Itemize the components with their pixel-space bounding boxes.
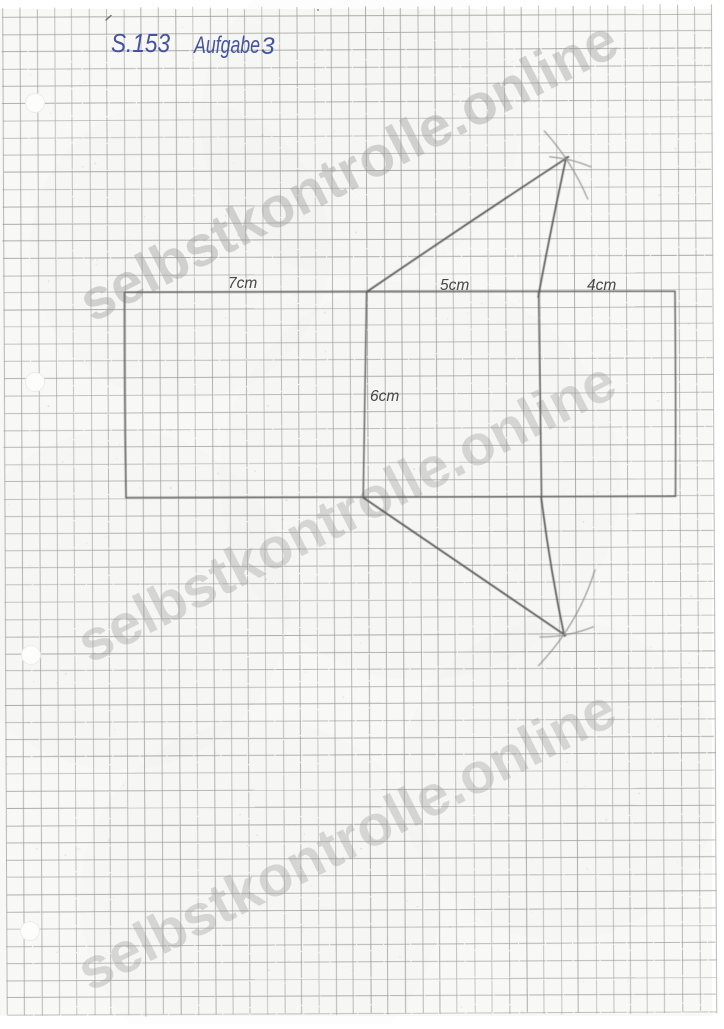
svg-text:5cm: 5cm xyxy=(440,277,469,294)
svg-text:6cm: 6cm xyxy=(370,388,399,405)
svg-text:7cm: 7cm xyxy=(228,275,257,292)
svg-text:Aufgabe: Aufgabe xyxy=(193,32,260,59)
svg-text:3: 3 xyxy=(261,33,275,60)
svg-text:4cm: 4cm xyxy=(587,277,616,294)
svg-text:S.153: S.153 xyxy=(111,30,170,58)
